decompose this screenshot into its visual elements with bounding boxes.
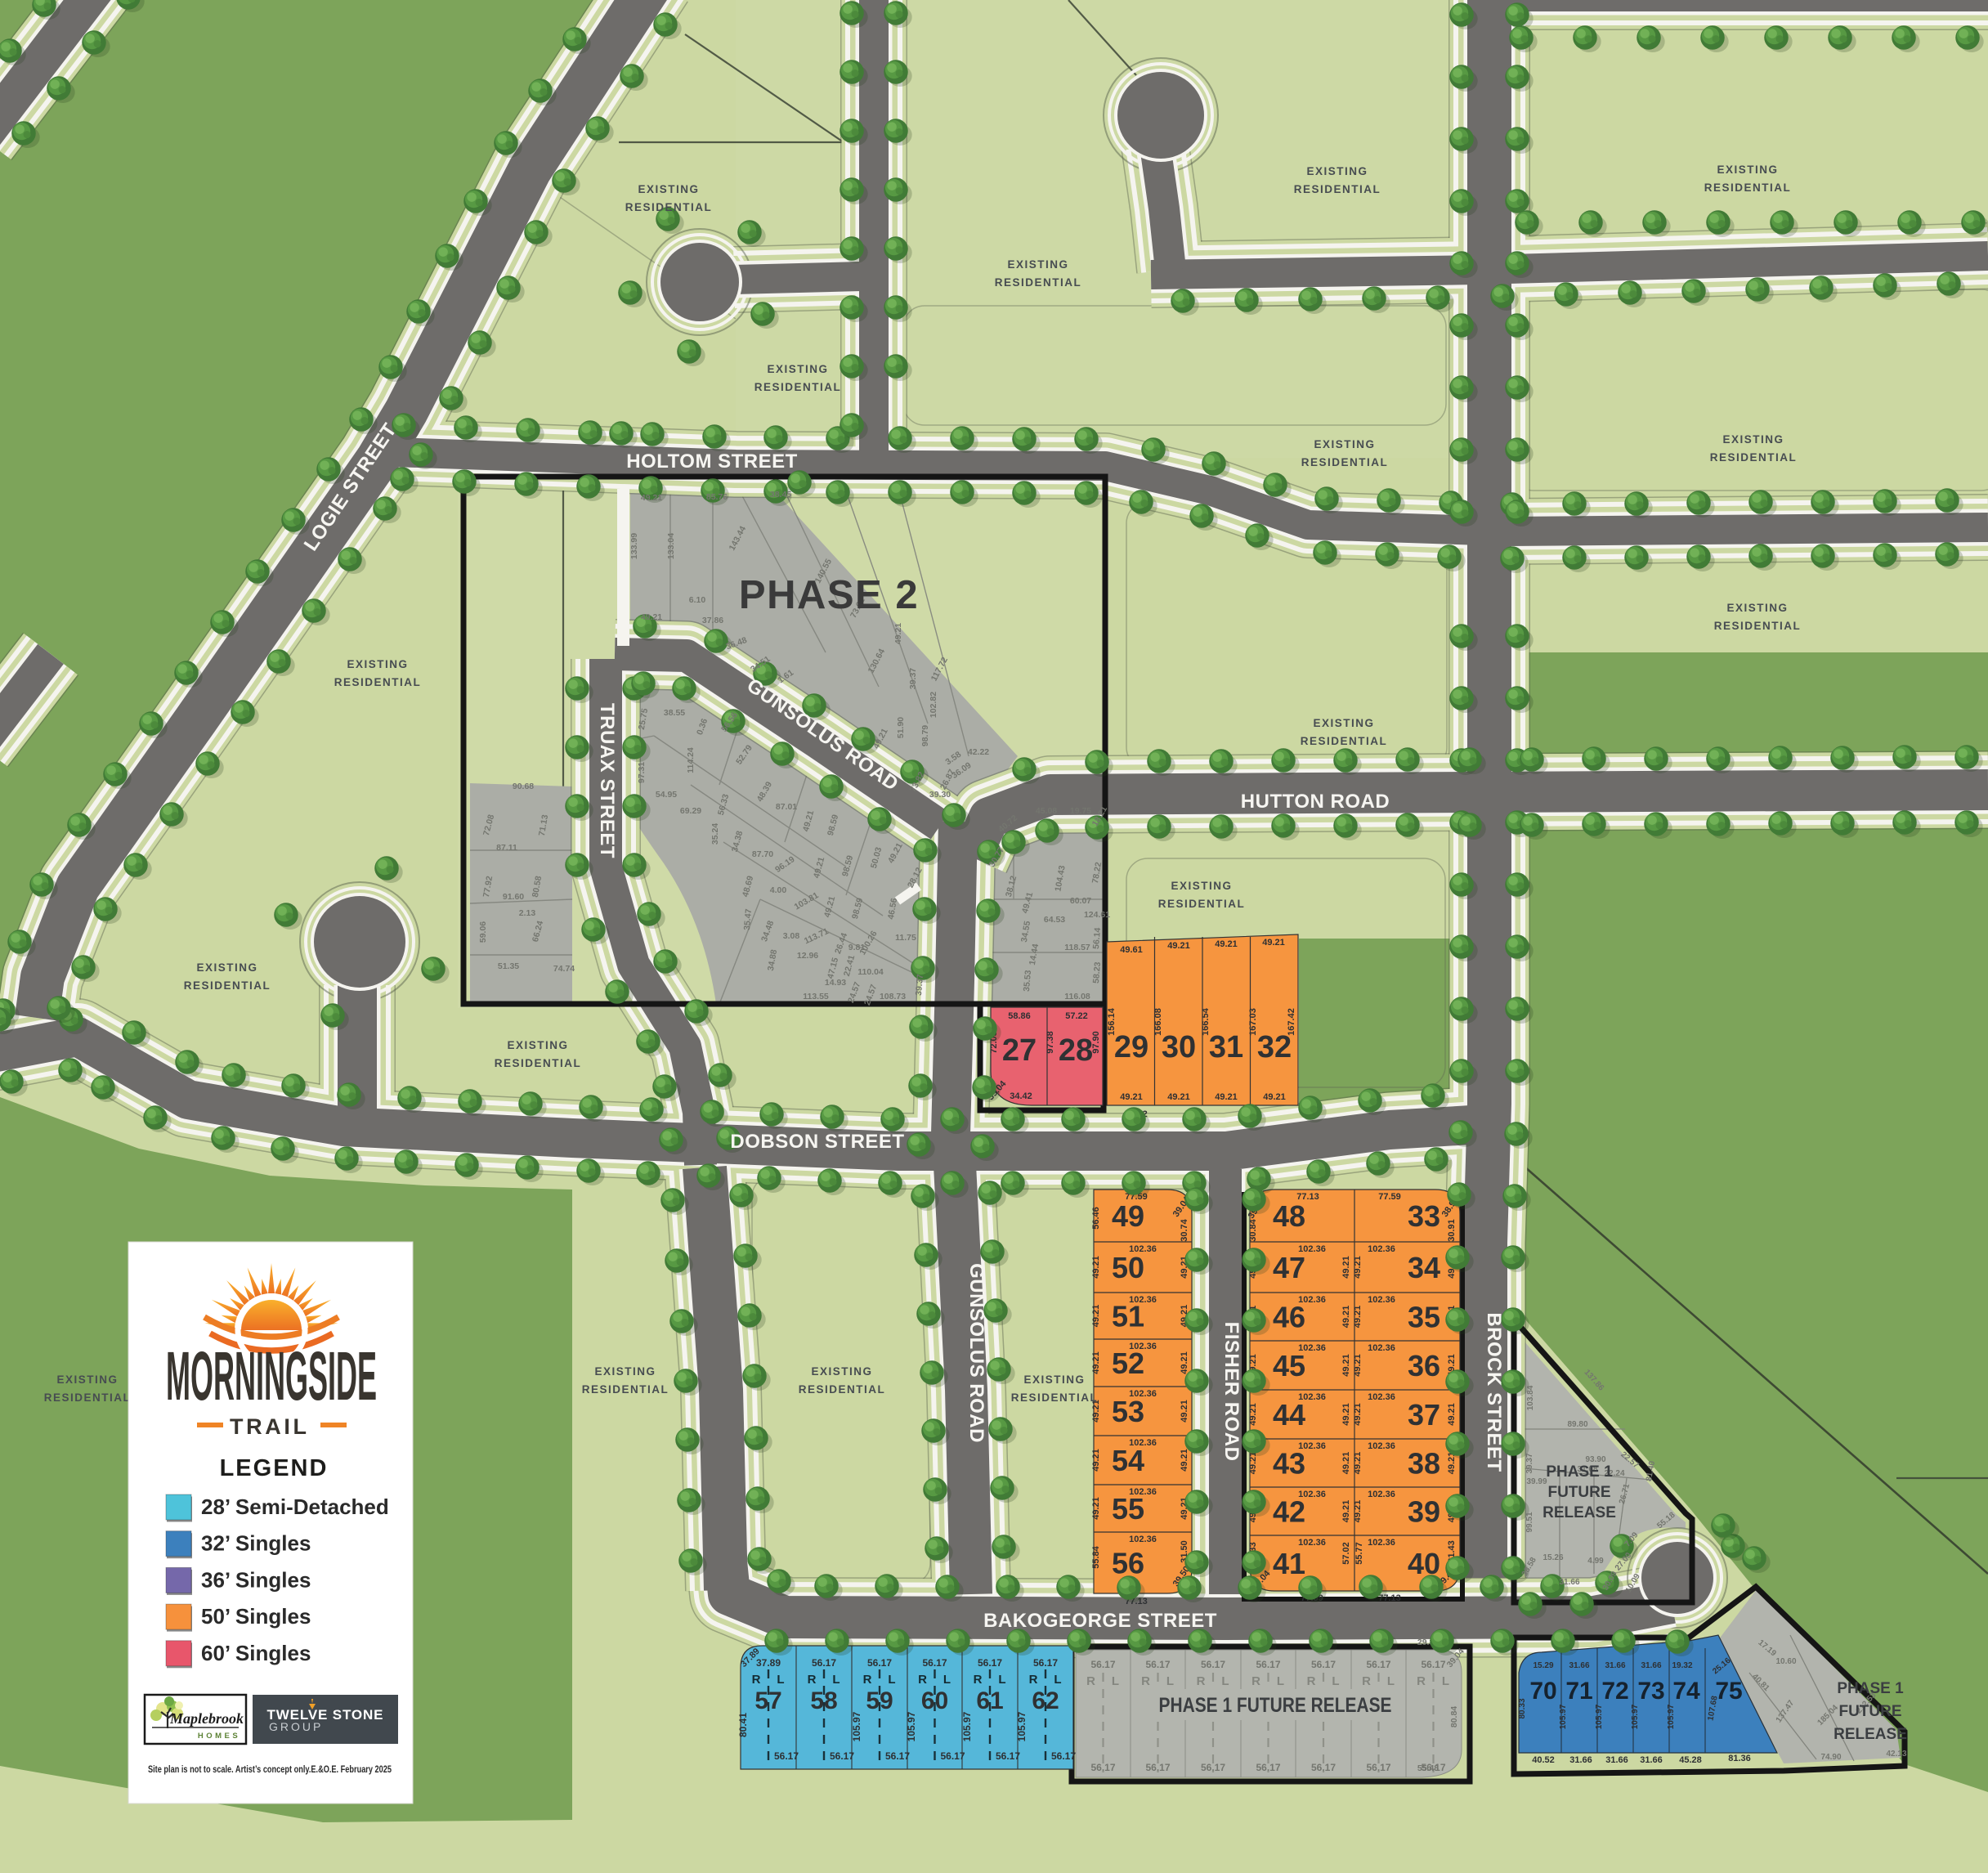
svg-text:56.17: 56.17	[1366, 1659, 1390, 1670]
svg-text:44: 44	[1273, 1398, 1305, 1432]
svg-text:90.68: 90.68	[513, 782, 534, 791]
svg-text:102.36: 102.36	[1298, 1343, 1326, 1353]
svg-text:RESIDENTIAL: RESIDENTIAL	[1294, 183, 1381, 195]
svg-text:RESIDENTIAL: RESIDENTIAL	[184, 979, 271, 992]
svg-text:97.90: 97.90	[1091, 1031, 1101, 1054]
svg-text:19.32: 19.32	[1672, 1661, 1692, 1670]
svg-text:R: R	[1251, 1674, 1260, 1688]
svg-text:167.42: 167.42	[1287, 1008, 1296, 1036]
svg-text:GROUP: GROUP	[269, 1720, 323, 1733]
svg-text:102.36: 102.36	[1298, 1392, 1326, 1402]
svg-text:RESIDENTIAL: RESIDENTIAL	[799, 1383, 886, 1396]
svg-text:32’ Singles: 32’ Singles	[201, 1531, 311, 1556]
svg-text:99.51: 99.51	[1525, 1512, 1534, 1532]
svg-text:56.17: 56.17	[1256, 1762, 1280, 1773]
svg-text:81.36: 81.36	[1728, 1754, 1751, 1763]
svg-text:RESIDENTIAL: RESIDENTIAL	[334, 676, 422, 688]
svg-text:RESIDENTIAL: RESIDENTIAL	[754, 381, 842, 393]
svg-text:64.53: 64.53	[1044, 915, 1065, 925]
svg-text:50: 50	[1112, 1251, 1144, 1284]
svg-text:L: L	[943, 1673, 951, 1687]
svg-text:38: 38	[1408, 1447, 1440, 1481]
svg-text:39.99: 39.99	[1526, 1477, 1547, 1486]
svg-text:42: 42	[1273, 1495, 1305, 1529]
svg-text:56.17: 56.17	[1033, 1657, 1058, 1669]
svg-text:31.66: 31.66	[1569, 1755, 1592, 1765]
svg-text:105.97: 105.97	[1595, 1704, 1604, 1729]
svg-text:105.97: 105.97	[1667, 1704, 1676, 1729]
svg-text:56.17: 56.17	[940, 1750, 965, 1762]
svg-text:EXISTING: EXISTING	[1314, 438, 1375, 450]
svg-text:19.75: 19.75	[1070, 806, 1091, 816]
svg-text:30.91: 30.91	[1447, 1219, 1457, 1242]
svg-text:30: 30	[1162, 1030, 1196, 1064]
svg-text:HOLTOM STREET: HOLTOM STREET	[626, 450, 798, 473]
svg-text:R: R	[974, 1673, 983, 1687]
svg-text:56.17: 56.17	[1051, 1750, 1076, 1762]
svg-text:54.95: 54.95	[656, 790, 677, 800]
svg-text:166.54: 166.54	[1201, 1007, 1211, 1036]
svg-text:45.28: 45.28	[1679, 1755, 1702, 1765]
svg-text:102.36: 102.36	[1368, 1343, 1395, 1353]
svg-text:L: L	[832, 1673, 840, 1687]
svg-text:EXISTING: EXISTING	[347, 658, 408, 670]
svg-text:59.06: 59.06	[478, 921, 488, 943]
svg-text:56.17: 56.17	[978, 1657, 1002, 1669]
svg-text:52: 52	[1112, 1346, 1144, 1380]
svg-text:RESIDENTIAL: RESIDENTIAL	[625, 201, 713, 213]
svg-text:L: L	[1221, 1674, 1229, 1688]
svg-text:RESIDENTIAL: RESIDENTIAL	[582, 1383, 669, 1396]
svg-text:HUTTON ROAD: HUTTON ROAD	[1241, 791, 1390, 813]
svg-text:EXISTING: EXISTING	[1023, 1373, 1085, 1386]
svg-text:49.21: 49.21	[1120, 1092, 1143, 1102]
svg-text:HOMES: HOMES	[198, 1732, 240, 1741]
svg-text:EXISTING: EXISTING	[1726, 602, 1788, 614]
svg-text:102.36: 102.36	[1298, 1538, 1326, 1548]
svg-text:74.74: 74.74	[553, 964, 575, 974]
svg-text:91.60: 91.60	[503, 892, 524, 902]
svg-text:80.84: 80.84	[1449, 1706, 1459, 1727]
svg-text:R: R	[752, 1673, 761, 1687]
svg-text:49.21: 49.21	[1341, 1500, 1351, 1523]
svg-text:56.17: 56.17	[996, 1750, 1020, 1762]
svg-text:GUNSOLUS ROAD: GUNSOLUS ROAD	[965, 1263, 987, 1443]
svg-text:L: L	[998, 1673, 1005, 1687]
svg-text:71: 71	[1565, 1678, 1592, 1705]
svg-text:56: 56	[1112, 1547, 1144, 1580]
svg-text:6.10: 6.10	[689, 595, 706, 605]
svg-text:15.26: 15.26	[1542, 1553, 1563, 1562]
svg-text:49.21: 49.21	[1353, 1306, 1363, 1329]
svg-text:50’ Singles: 50’ Singles	[201, 1604, 311, 1629]
svg-text:FISHER ROAD: FISHER ROAD	[1220, 1322, 1242, 1462]
svg-text:EXISTING: EXISTING	[1722, 433, 1784, 446]
svg-text:51.90: 51.90	[896, 717, 906, 738]
svg-text:RESIDENTIAL: RESIDENTIAL	[1011, 1391, 1099, 1404]
svg-text:105.97: 105.97	[961, 1711, 973, 1741]
svg-text:36: 36	[1408, 1349, 1440, 1382]
svg-text:29: 29	[1114, 1030, 1148, 1064]
svg-text:110.04: 110.04	[857, 967, 884, 977]
svg-text:102.36: 102.36	[1129, 1244, 1157, 1254]
svg-text:RESIDENTIAL: RESIDENTIAL	[1301, 735, 1388, 747]
svg-text:56.46: 56.46	[1091, 1207, 1101, 1230]
svg-text:56.17: 56.17	[867, 1657, 892, 1669]
svg-text:3.08: 3.08	[783, 931, 800, 941]
svg-text:56.17: 56.17	[812, 1657, 836, 1669]
svg-text:49.21: 49.21	[1180, 1449, 1189, 1472]
svg-text:R: R	[1029, 1673, 1038, 1687]
svg-text:105.97: 105.97	[1559, 1704, 1568, 1729]
svg-text:49.21: 49.21	[1167, 1092, 1190, 1102]
svg-text:27: 27	[1002, 1033, 1037, 1068]
svg-text:102.82: 102.82	[929, 692, 938, 718]
svg-text:37: 37	[1408, 1398, 1440, 1432]
svg-text:42.22: 42.22	[968, 747, 989, 757]
svg-text:RESIDENTIAL: RESIDENTIAL	[1704, 181, 1792, 194]
svg-text:12.96: 12.96	[797, 951, 818, 961]
svg-text:58.23: 58.23	[1091, 961, 1103, 984]
svg-text:80.41: 80.41	[737, 1713, 749, 1737]
svg-text:Maplebrook: Maplebrook	[169, 1710, 244, 1727]
svg-text:49.21: 49.21	[1341, 1403, 1351, 1426]
svg-text:EXISTING: EXISTING	[1717, 164, 1778, 176]
svg-text:49.21: 49.21	[641, 612, 662, 622]
svg-text:45.08: 45.08	[1036, 806, 1057, 816]
svg-text:75: 75	[1715, 1678, 1742, 1705]
svg-text:RESIDENTIAL: RESIDENTIAL	[1714, 620, 1802, 632]
svg-text:102.36: 102.36	[1298, 1441, 1326, 1451]
svg-text:56.17: 56.17	[1256, 1659, 1280, 1670]
svg-text:156.14: 156.14	[1107, 1007, 1117, 1036]
svg-text:49.21: 49.21	[1341, 1452, 1351, 1475]
svg-text:56.17: 56.17	[774, 1750, 799, 1762]
svg-text:97.31: 97.31	[637, 762, 647, 783]
svg-text:40: 40	[1408, 1547, 1440, 1580]
svg-text:EXISTING: EXISTING	[1306, 165, 1368, 177]
svg-text:102.36: 102.36	[1129, 1389, 1157, 1399]
svg-text:15.29: 15.29	[1533, 1661, 1553, 1670]
svg-text:TRAIL: TRAIL	[230, 1414, 313, 1439]
svg-text:R: R	[1197, 1674, 1206, 1688]
svg-text:L: L	[1166, 1674, 1174, 1688]
svg-text:FUTURE: FUTURE	[1838, 1703, 1901, 1720]
svg-text:L: L	[1054, 1673, 1061, 1687]
svg-text:77.59: 77.59	[1378, 1192, 1401, 1202]
svg-text:38.45: 38.45	[770, 490, 791, 500]
svg-text:47: 47	[1273, 1251, 1305, 1284]
svg-text:RELEASE: RELEASE	[1834, 1726, 1907, 1743]
svg-text:49.21: 49.21	[1353, 1452, 1363, 1475]
svg-text:49.21: 49.21	[1091, 1449, 1101, 1472]
svg-text:31.66: 31.66	[1605, 1661, 1625, 1670]
svg-text:56.17: 56.17	[1090, 1659, 1115, 1670]
svg-text:55.48: 55.48	[1417, 1763, 1439, 1773]
svg-text:RESIDENTIAL: RESIDENTIAL	[44, 1391, 132, 1404]
svg-text:69.29: 69.29	[680, 806, 701, 816]
svg-text:49.21: 49.21	[1341, 1256, 1351, 1279]
svg-text:74.90: 74.90	[1820, 1753, 1841, 1762]
svg-text:EXISTING: EXISTING	[1007, 258, 1068, 271]
svg-text:73: 73	[1637, 1678, 1664, 1705]
svg-text:49.21: 49.21	[1215, 1092, 1238, 1102]
svg-text:55.77: 55.77	[1354, 1542, 1364, 1565]
svg-text:49.21: 49.21	[1091, 1497, 1101, 1520]
svg-text:35.47: 35.47	[742, 908, 754, 930]
svg-text:55: 55	[1112, 1492, 1144, 1526]
svg-text:L: L	[1387, 1674, 1395, 1688]
svg-text:56.17: 56.17	[885, 1750, 910, 1762]
svg-text:56.17: 56.17	[1201, 1659, 1225, 1670]
svg-text:RESIDENTIAL: RESIDENTIAL	[995, 276, 1082, 289]
svg-text:34.42: 34.42	[1010, 1091, 1032, 1101]
svg-text:102.36: 102.36	[1368, 1538, 1395, 1548]
svg-text:118.57: 118.57	[1064, 943, 1090, 952]
svg-text:LEGEND: LEGEND	[220, 1455, 329, 1481]
svg-text:56.17: 56.17	[1421, 1659, 1445, 1670]
svg-text:56.17: 56.17	[1201, 1762, 1225, 1773]
svg-text:39.30: 39.30	[929, 790, 951, 800]
svg-text:49.21: 49.21	[1353, 1354, 1363, 1377]
svg-text:RESIDENTIAL: RESIDENTIAL	[1301, 456, 1389, 468]
svg-text:31.66: 31.66	[1605, 1755, 1628, 1765]
svg-text:14.93: 14.93	[825, 978, 846, 988]
svg-text:102.36: 102.36	[1129, 1342, 1157, 1351]
svg-text:53: 53	[1112, 1395, 1144, 1428]
svg-text:98.79: 98.79	[920, 725, 930, 746]
svg-text:L: L	[888, 1673, 895, 1687]
svg-text:58.86: 58.86	[1008, 1011, 1031, 1021]
svg-text:R: R	[1086, 1674, 1095, 1688]
svg-text:EXISTING: EXISTING	[594, 1365, 656, 1378]
svg-text:72: 72	[1601, 1678, 1628, 1705]
svg-text:56.17: 56.17	[922, 1657, 947, 1669]
svg-text:39.37: 39.37	[914, 974, 925, 996]
svg-text:EXISTING: EXISTING	[1171, 880, 1232, 892]
svg-text:31: 31	[1209, 1030, 1243, 1064]
svg-text:R: R	[918, 1673, 927, 1687]
svg-text:RESIDENTIAL: RESIDENTIAL	[1158, 898, 1246, 910]
svg-text:10.60: 10.60	[1775, 1657, 1796, 1666]
svg-text:EXISTING: EXISTING	[811, 1365, 872, 1378]
svg-text:102.36: 102.36	[1368, 1392, 1395, 1402]
svg-text:37.89: 37.89	[756, 1657, 781, 1669]
svg-text:87.01: 87.01	[776, 802, 797, 812]
svg-text:70: 70	[1529, 1678, 1556, 1705]
svg-text:R: R	[863, 1673, 872, 1687]
svg-text:102.36: 102.36	[1368, 1490, 1395, 1499]
svg-text:39.37: 39.37	[1525, 1453, 1534, 1473]
svg-text:11.75: 11.75	[895, 933, 916, 943]
svg-text:BROCK STREET: BROCK STREET	[1483, 1312, 1505, 1472]
svg-text:39: 39	[1408, 1495, 1440, 1529]
svg-text:TRUAX STREET: TRUAX STREET	[596, 703, 618, 858]
svg-text:56.17: 56.17	[1090, 1762, 1115, 1773]
svg-text:48: 48	[1273, 1199, 1305, 1233]
svg-text:49.21: 49.21	[1353, 1500, 1363, 1523]
svg-text:49.21: 49.21	[641, 493, 662, 503]
svg-text:40.52: 40.52	[1532, 1755, 1555, 1765]
svg-text:105.97: 105.97	[1631, 1704, 1640, 1729]
svg-text:49.21: 49.21	[1167, 941, 1190, 951]
svg-text:108.73: 108.73	[880, 992, 906, 1001]
svg-text:102.36: 102.36	[1129, 1535, 1157, 1544]
svg-text:116.08: 116.08	[1064, 992, 1090, 1001]
svg-text:167.03: 167.03	[1248, 1008, 1258, 1036]
svg-text:49.21: 49.21	[1353, 1256, 1363, 1279]
svg-text:56.17: 56.17	[1145, 1762, 1170, 1773]
svg-text:77.13: 77.13	[1296, 1192, 1319, 1202]
svg-text:33: 33	[1408, 1199, 1440, 1233]
svg-text:EXISTING: EXISTING	[56, 1373, 118, 1386]
svg-text:56.17: 56.17	[830, 1750, 854, 1762]
svg-text:35: 35	[1408, 1301, 1440, 1334]
svg-text:RESIDENTIAL: RESIDENTIAL	[1710, 451, 1798, 464]
svg-text:51.35: 51.35	[498, 961, 519, 971]
svg-text:56.17: 56.17	[1145, 1659, 1170, 1670]
svg-text:56.17: 56.17	[1366, 1762, 1390, 1773]
svg-text:28: 28	[1059, 1033, 1093, 1068]
svg-text:28’ Semi-Detached: 28’ Semi-Detached	[201, 1494, 389, 1519]
svg-text:30.74: 30.74	[1180, 1218, 1189, 1241]
svg-text:49.21: 49.21	[893, 623, 903, 644]
svg-text:49.61: 49.61	[1120, 945, 1143, 955]
svg-text:35.53: 35.53	[1022, 970, 1033, 992]
svg-text:49.21: 49.21	[1180, 1400, 1189, 1423]
svg-text:31.66: 31.66	[1640, 1755, 1663, 1765]
svg-text:49.21: 49.21	[1091, 1305, 1101, 1328]
svg-text:56.14: 56.14	[1091, 927, 1103, 949]
svg-text:4.99: 4.99	[1587, 1557, 1604, 1566]
svg-text:102.36: 102.36	[1298, 1295, 1326, 1305]
svg-text:31.66: 31.66	[1641, 1661, 1661, 1670]
svg-text:EXISTING: EXISTING	[638, 183, 699, 195]
svg-text:EXISTING: EXISTING	[767, 363, 828, 375]
svg-text:PHASE 1: PHASE 1	[1837, 1680, 1904, 1697]
svg-text:103.84: 103.84	[1526, 1385, 1535, 1410]
svg-text:49.21: 49.21	[1248, 1403, 1258, 1426]
svg-text:114.24: 114.24	[686, 747, 696, 773]
svg-text:87.70: 87.70	[752, 849, 773, 859]
svg-text:49.21: 49.21	[1353, 1403, 1363, 1426]
svg-text:102.36: 102.36	[1129, 1487, 1157, 1497]
svg-text:42.13: 42.13	[1886, 1750, 1906, 1759]
svg-text:102.36: 102.36	[1298, 1490, 1326, 1499]
svg-text:49.21: 49.21	[1263, 1092, 1286, 1102]
svg-text:102.36: 102.36	[1129, 1438, 1157, 1448]
svg-text:MORNINGSIDE: MORNINGSIDE	[166, 1338, 377, 1414]
svg-text:60.07: 60.07	[1070, 896, 1091, 906]
svg-text:85.76: 85.76	[706, 492, 728, 502]
svg-text:49.21: 49.21	[1180, 1351, 1189, 1374]
svg-text:L: L	[777, 1673, 784, 1687]
svg-text:102.36: 102.36	[1368, 1244, 1395, 1254]
svg-text:105.97: 105.97	[1016, 1711, 1028, 1741]
svg-text:57.02: 57.02	[1341, 1542, 1351, 1565]
svg-text:124.61: 124.61	[1084, 910, 1110, 920]
svg-text:EXISTING: EXISTING	[196, 961, 257, 974]
svg-text:EXISTING: EXISTING	[507, 1039, 568, 1051]
svg-text:30.84: 30.84	[1248, 1218, 1258, 1241]
svg-text:PHASE 1: PHASE 1	[1546, 1463, 1613, 1481]
svg-text:4.00: 4.00	[770, 885, 787, 895]
svg-text:56.17: 56.17	[1311, 1659, 1336, 1670]
svg-text:60’ Singles: 60’ Singles	[201, 1641, 311, 1665]
svg-text:166.08: 166.08	[1153, 1008, 1163, 1036]
svg-text:105.97: 105.97	[851, 1711, 862, 1741]
svg-text:102.36: 102.36	[1298, 1244, 1326, 1254]
svg-text:46: 46	[1273, 1301, 1305, 1334]
svg-text:R: R	[1307, 1674, 1316, 1688]
svg-text:97.38: 97.38	[1045, 1031, 1055, 1054]
svg-text:L: L	[1442, 1674, 1449, 1688]
svg-text:36’ Singles: 36’ Singles	[201, 1567, 311, 1592]
svg-text:41: 41	[1273, 1547, 1305, 1580]
svg-text:45: 45	[1273, 1349, 1305, 1382]
svg-text:113.55: 113.55	[803, 992, 829, 1001]
svg-text:39.37: 39.37	[908, 668, 918, 689]
svg-text:49.21: 49.21	[1262, 938, 1285, 948]
svg-text:PHASE 1 FUTURE RELEASE: PHASE 1 FUTURE RELEASE	[1159, 1694, 1392, 1717]
svg-text:56.17: 56.17	[1311, 1762, 1336, 1773]
svg-text:49: 49	[1112, 1199, 1144, 1233]
svg-text:102.36: 102.36	[1129, 1295, 1157, 1305]
svg-text:FUTURE: FUTURE	[1547, 1484, 1610, 1501]
svg-text:L: L	[1112, 1674, 1119, 1688]
svg-text:49.21: 49.21	[1447, 1403, 1457, 1426]
svg-text:EXISTING: EXISTING	[1313, 717, 1374, 729]
svg-text:R: R	[1362, 1674, 1371, 1688]
svg-text:DOBSON STREET: DOBSON STREET	[730, 1131, 904, 1153]
svg-text:49.21: 49.21	[1091, 1256, 1101, 1279]
svg-text:R: R	[1417, 1674, 1426, 1688]
svg-text:55.84: 55.84	[1091, 1545, 1101, 1568]
svg-text:49.21: 49.21	[1091, 1351, 1101, 1374]
svg-text:133.99: 133.99	[629, 533, 639, 559]
svg-text:R: R	[808, 1673, 817, 1687]
svg-text:31.66: 31.66	[1559, 1578, 1579, 1587]
svg-text:2.13: 2.13	[519, 908, 536, 918]
svg-text:L: L	[1277, 1674, 1284, 1688]
svg-text:RESIDENTIAL: RESIDENTIAL	[495, 1057, 582, 1069]
svg-text:74: 74	[1672, 1678, 1700, 1705]
svg-text:102.36: 102.36	[1368, 1441, 1395, 1451]
svg-text:BAKOGEORGE STREET: BAKOGEORGE STREET	[983, 1610, 1217, 1632]
svg-text:87.11: 87.11	[496, 843, 517, 853]
svg-text:31.66: 31.66	[1569, 1661, 1589, 1670]
svg-text:57.22: 57.22	[1065, 1011, 1088, 1021]
svg-text:R: R	[1141, 1674, 1150, 1688]
svg-text:49.21: 49.21	[1341, 1354, 1351, 1377]
svg-text:L: L	[1332, 1674, 1339, 1688]
svg-text:43: 43	[1273, 1447, 1305, 1481]
svg-text:105.97: 105.97	[906, 1711, 917, 1741]
svg-text:54: 54	[1112, 1444, 1144, 1477]
svg-text:102.36: 102.36	[1368, 1295, 1395, 1305]
svg-text:38.55: 38.55	[664, 708, 685, 718]
svg-text:89.80: 89.80	[1567, 1420, 1587, 1429]
svg-text:80.33: 80.33	[1518, 1698, 1527, 1718]
svg-text:RELEASE: RELEASE	[1542, 1504, 1616, 1521]
svg-text:37.86: 37.86	[702, 616, 723, 625]
svg-text:49.21: 49.21	[1215, 939, 1238, 949]
svg-text:PHASE 2: PHASE 2	[739, 573, 919, 617]
svg-text:34: 34	[1408, 1251, 1440, 1284]
svg-text:49.21: 49.21	[1341, 1306, 1351, 1329]
svg-text:Site plan is not to scale. Art: Site plan is not to scale. Artist’s conc…	[148, 1763, 392, 1775]
svg-text:133.04: 133.04	[666, 533, 676, 559]
